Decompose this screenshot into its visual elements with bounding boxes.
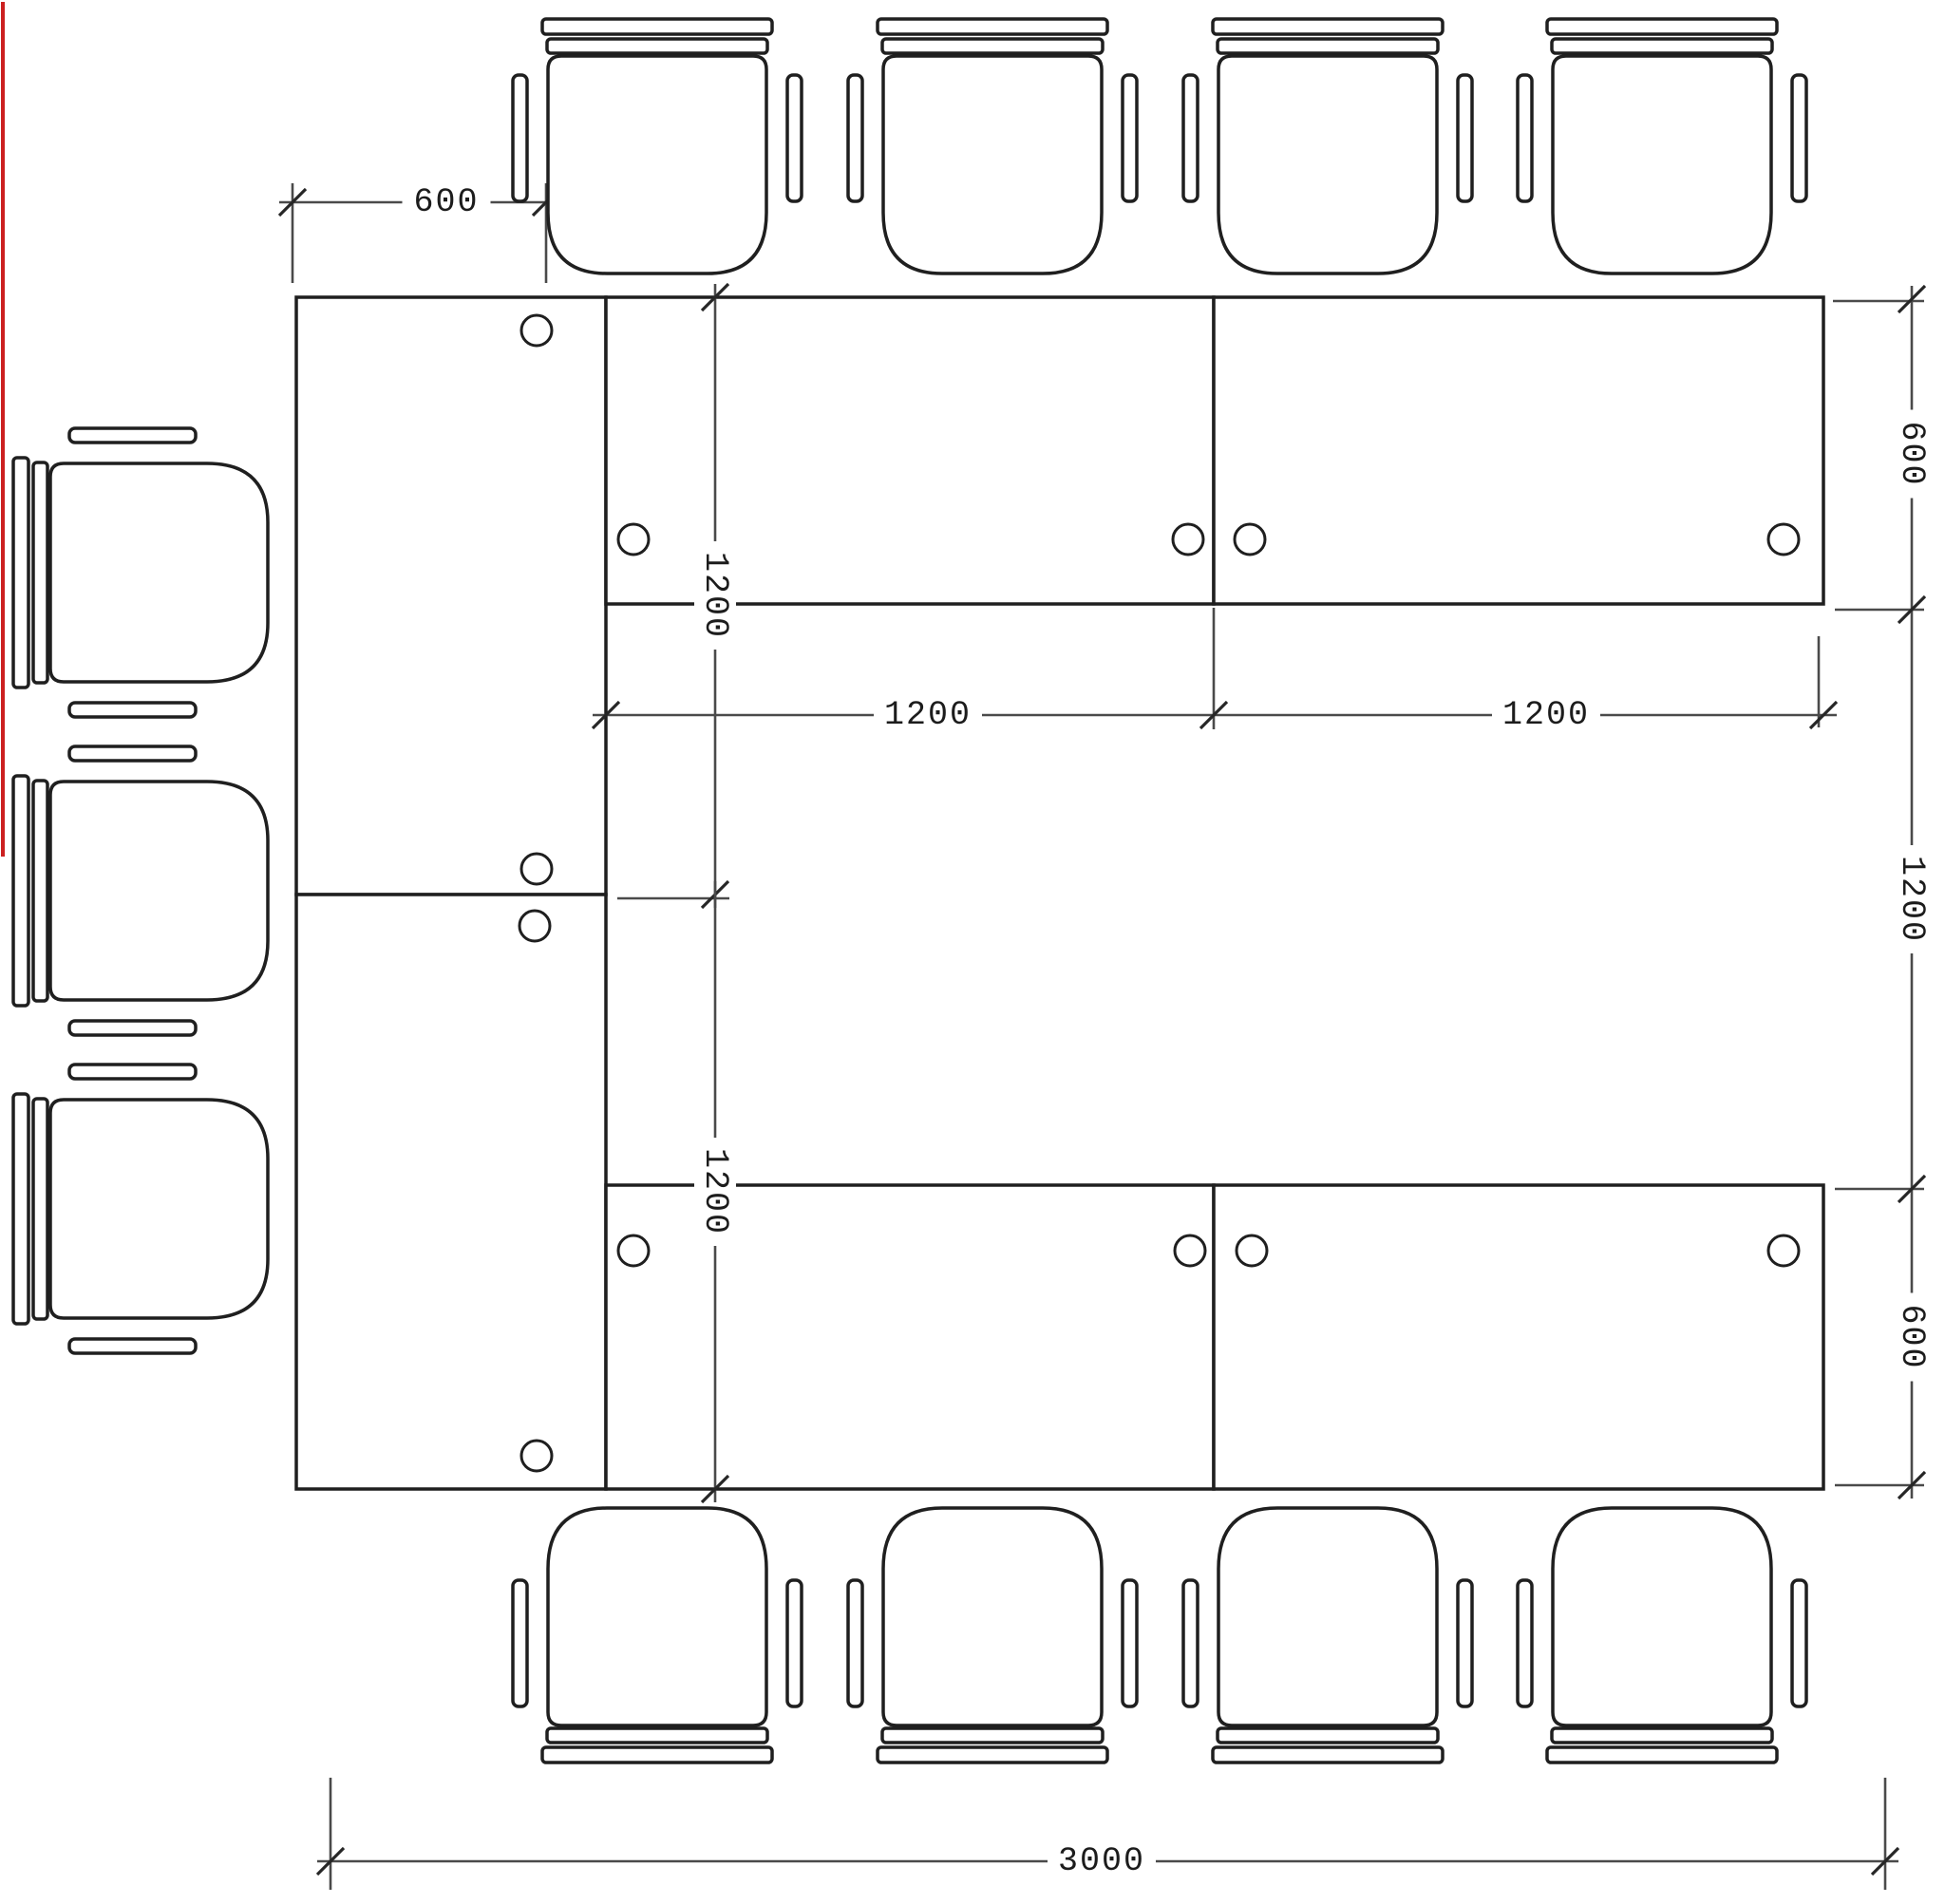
chair-left-2 xyxy=(13,746,268,1035)
dim-inner-1200-1200: 12001200 xyxy=(593,608,1837,736)
conference-tables-layer xyxy=(296,297,1823,1489)
table-left-upper xyxy=(296,297,606,895)
red-edge-mark xyxy=(1,2,5,857)
table-bottom-right xyxy=(1214,1185,1823,1489)
dim-bottom-3000: 3000 xyxy=(317,1778,1898,1890)
chair-left-1 xyxy=(13,428,268,717)
chair-bottom-3 xyxy=(1183,1508,1472,1763)
chair-bottom-2 xyxy=(848,1508,1137,1763)
chair-top-3 xyxy=(1183,19,1472,273)
dimension-label: 1200 xyxy=(696,1148,734,1235)
floor-plan-canvas: 600120012001200120060012006003000 xyxy=(0,0,1945,1904)
dimension-label: 600 xyxy=(1893,1304,1931,1369)
table-left-lower xyxy=(296,895,606,1489)
dimension-label: 3000 xyxy=(1058,1842,1145,1880)
chair-bottom-1 xyxy=(513,1508,802,1763)
chair-top-1 xyxy=(513,19,802,273)
dimension-label: 1200 xyxy=(1502,696,1590,734)
edge-marks-layer xyxy=(1,2,5,857)
table-top-right xyxy=(1214,297,1823,604)
chair-top-4 xyxy=(1518,19,1806,273)
dimension-label: 1200 xyxy=(696,552,734,639)
dimension-label: 1200 xyxy=(884,696,972,734)
chair-bottom-4 xyxy=(1518,1508,1806,1763)
dimension-label: 1200 xyxy=(1893,856,1931,943)
dimension-label: 600 xyxy=(1893,421,1931,486)
chair-top-2 xyxy=(848,19,1137,273)
dim-right-stack: 6001200600 xyxy=(1833,286,1933,1499)
dimension-label: 600 xyxy=(413,183,479,221)
chairs-layer xyxy=(13,19,1806,1763)
chair-left-3 xyxy=(13,1065,268,1353)
floor-plan-drawing: 600120012001200120060012006003000 xyxy=(0,0,1945,1904)
